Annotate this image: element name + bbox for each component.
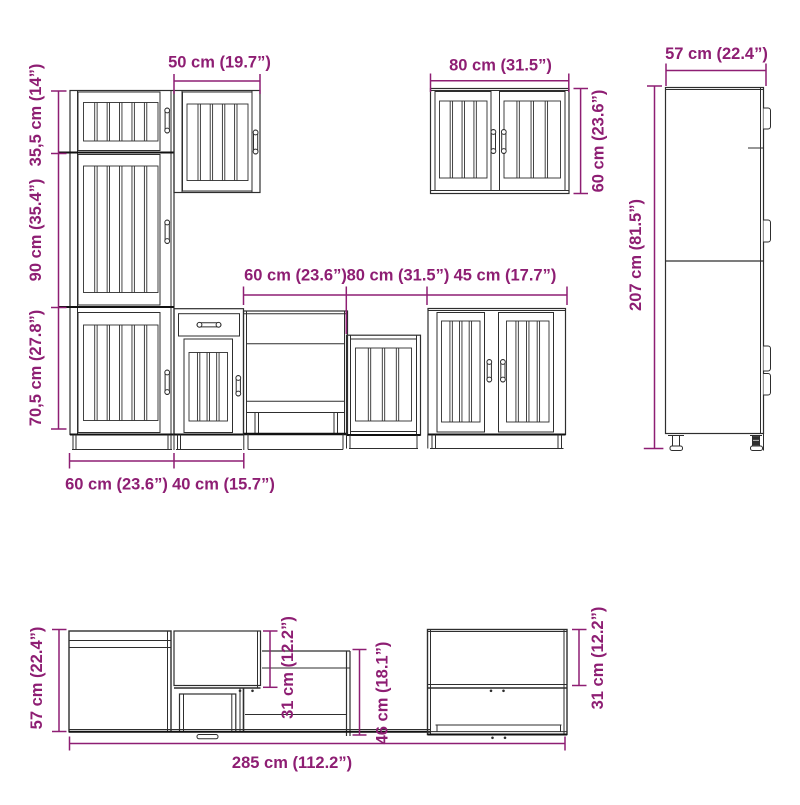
svg-text:285 cm (112.2”): 285 cm (112.2”) bbox=[232, 754, 352, 772]
svg-text:80 cm (31.5”): 80 cm (31.5”) bbox=[347, 267, 450, 285]
svg-text:60 cm (23.6”): 60 cm (23.6”) bbox=[244, 267, 347, 285]
svg-text:31 cm (12.2”): 31 cm (12.2”) bbox=[279, 616, 297, 719]
svg-text:60 cm (23.6”): 60 cm (23.6”) bbox=[590, 90, 608, 193]
svg-text:50 cm (19.7”): 50 cm (19.7”) bbox=[168, 54, 271, 72]
svg-text:70,5 cm (27.8”): 70,5 cm (27.8”) bbox=[27, 310, 45, 426]
svg-text:57 cm (22.4”): 57 cm (22.4”) bbox=[665, 45, 768, 63]
svg-text:90 cm (35.4”): 90 cm (35.4”) bbox=[27, 179, 45, 282]
svg-text:35,5 cm (14”): 35,5 cm (14”) bbox=[27, 64, 45, 167]
svg-text:45 cm (17.7”): 45 cm (17.7”) bbox=[454, 267, 557, 285]
svg-text:80 cm (31.5”): 80 cm (31.5”) bbox=[449, 57, 552, 75]
svg-text:40 cm (15.7”): 40 cm (15.7”) bbox=[172, 476, 275, 494]
svg-text:60 cm (23.6”): 60 cm (23.6”) bbox=[65, 476, 168, 494]
svg-text:31 cm (12.2”): 31 cm (12.2”) bbox=[589, 607, 607, 710]
svg-text:57 cm (22.4”): 57 cm (22.4”) bbox=[28, 627, 46, 730]
svg-text:46 cm (18.1”): 46 cm (18.1”) bbox=[374, 642, 392, 745]
svg-text:207 cm (81.5”): 207 cm (81.5”) bbox=[627, 199, 645, 311]
